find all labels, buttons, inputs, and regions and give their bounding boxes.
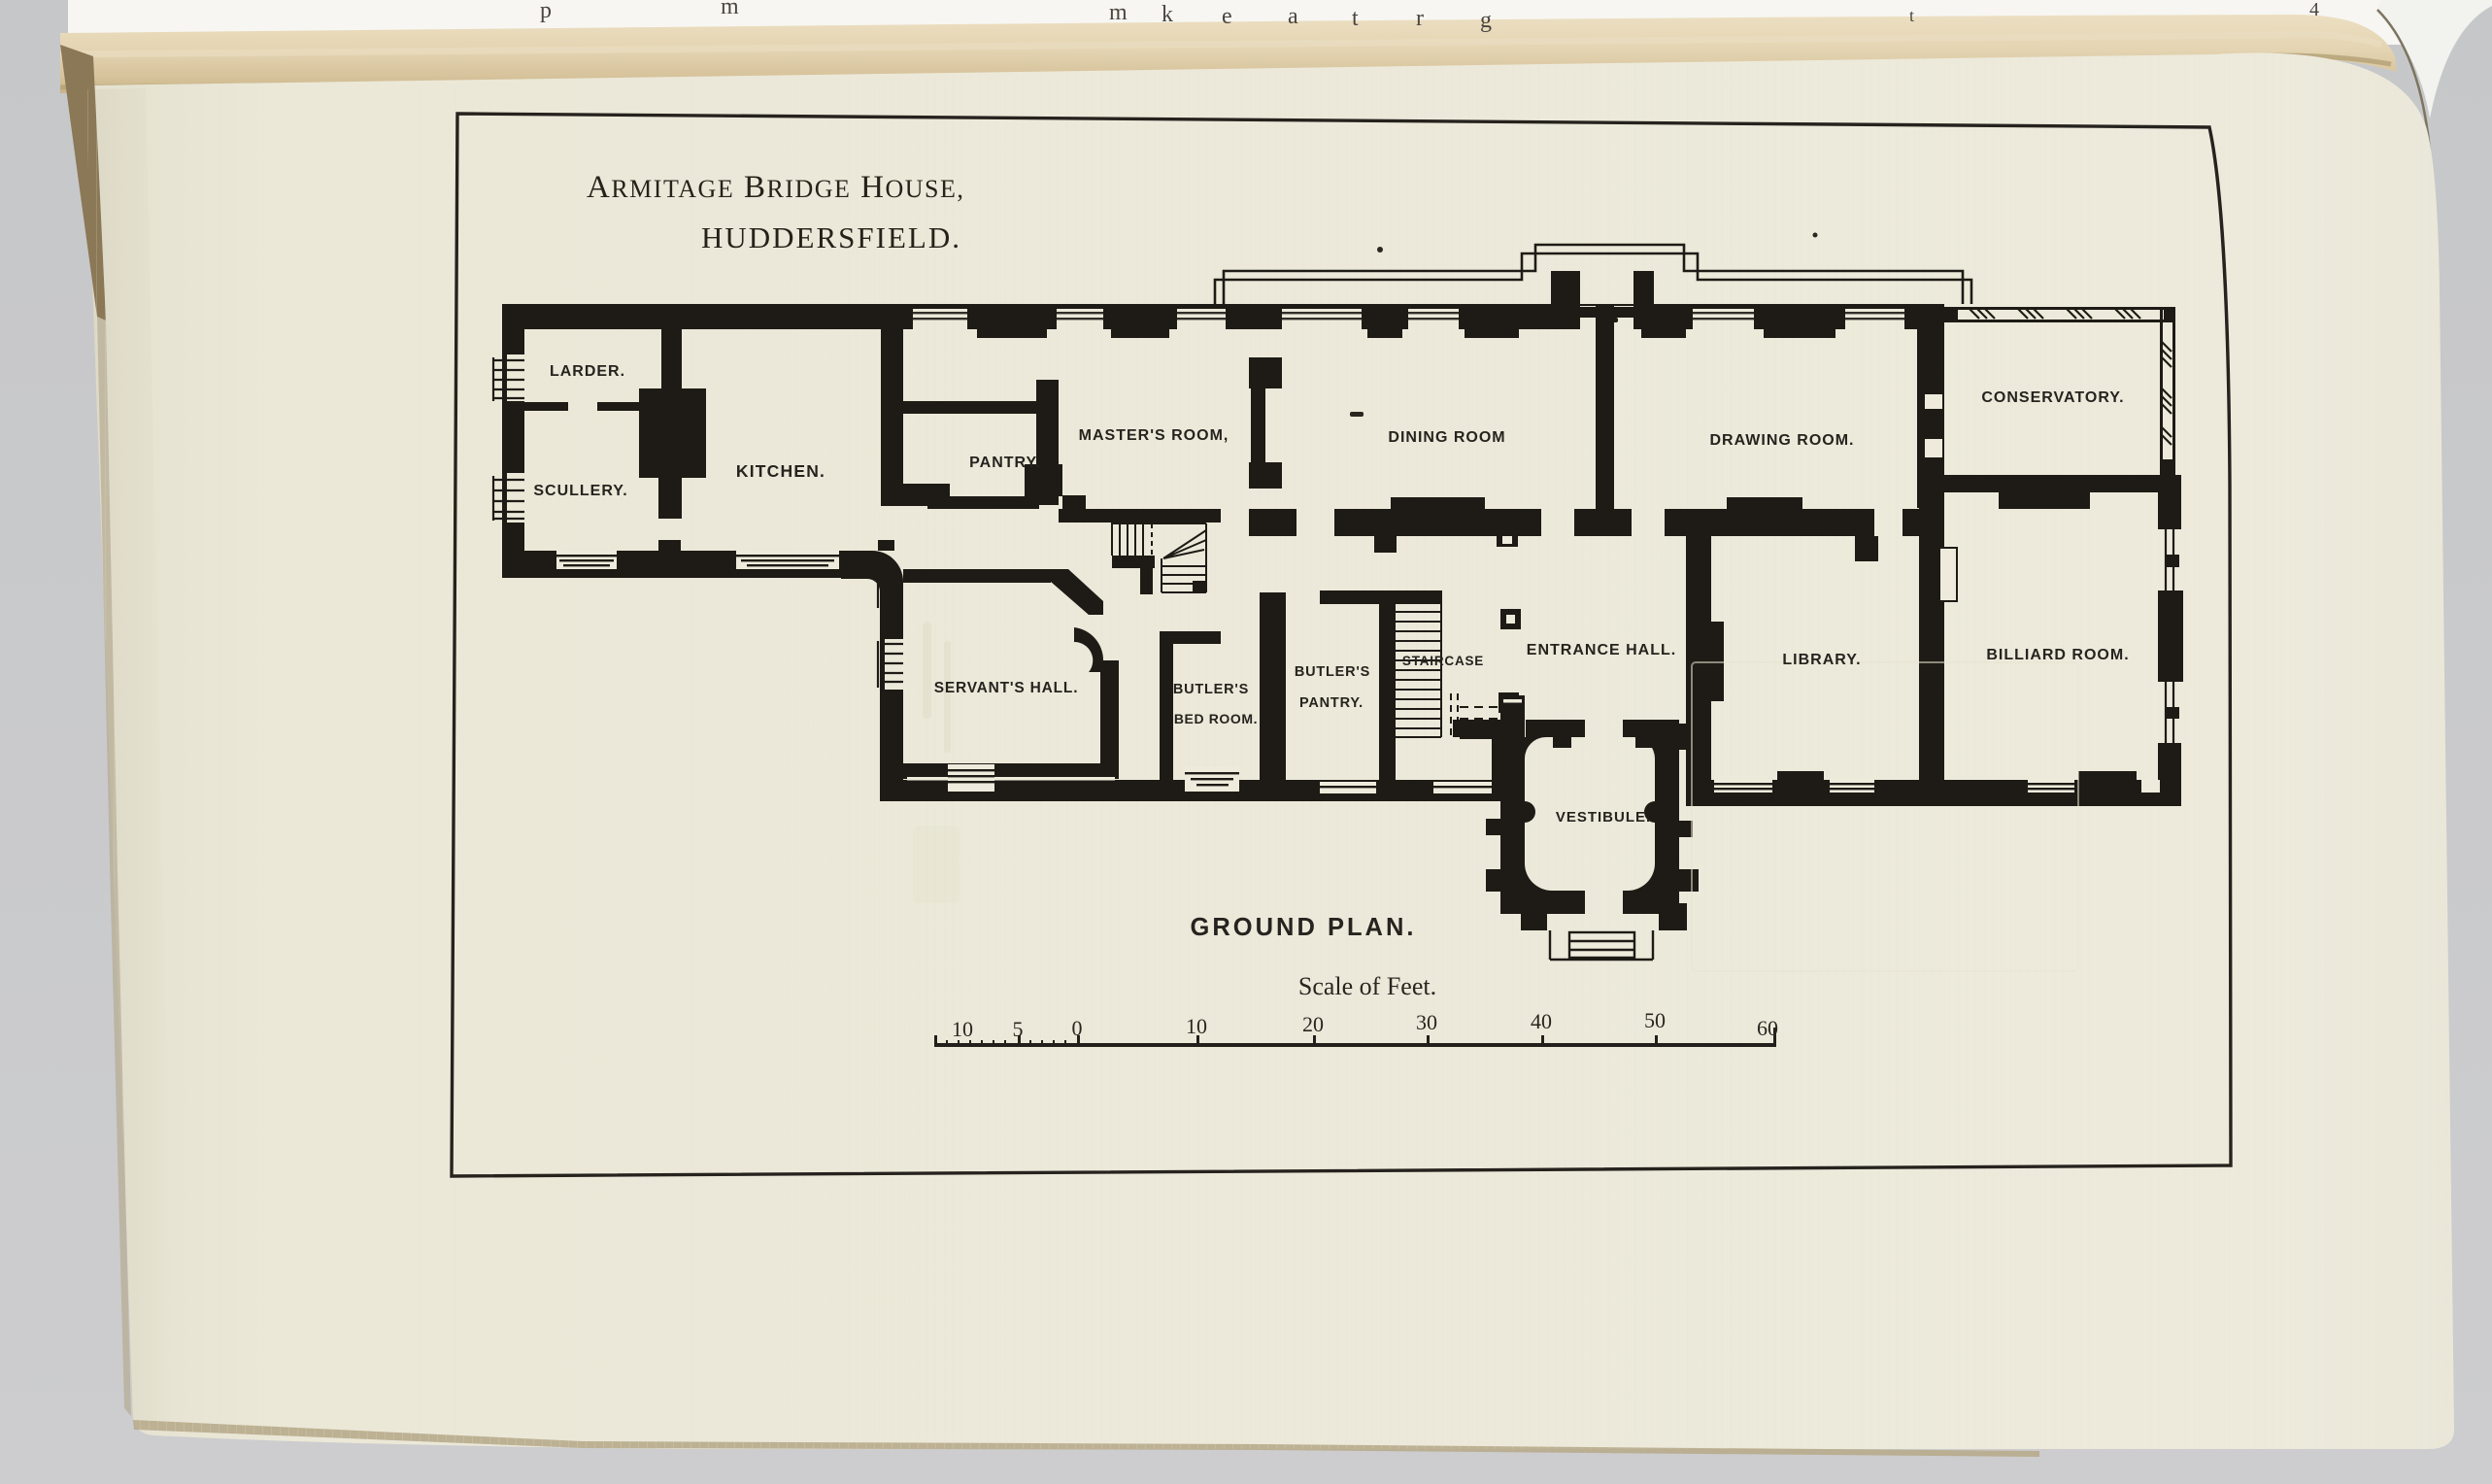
- svg-text:GROUND PLAN.: GROUND PLAN.: [1191, 914, 1417, 941]
- svg-text:SCULLERY.: SCULLERY.: [533, 483, 627, 499]
- svg-text:m: m: [721, 0, 739, 19]
- svg-text:4: 4: [2309, 0, 2319, 20]
- svg-text:ENTRANCE HALL.: ENTRANCE HALL.: [1527, 642, 1676, 658]
- svg-text:BUTLER'S: BUTLER'S: [1173, 682, 1249, 697]
- svg-text:BILLIARD ROOM.: BILLIARD ROOM.: [1986, 647, 2129, 663]
- svg-text:40: 40: [1531, 1009, 1552, 1033]
- svg-text:BUTLER'S: BUTLER'S: [1295, 664, 1370, 680]
- svg-text:CONSERVATORY.: CONSERVATORY.: [1981, 389, 2124, 406]
- svg-text:m: m: [1109, 0, 1128, 25]
- svg-text:e: e: [1222, 4, 1232, 29]
- svg-text:KITCHEN.: KITCHEN.: [736, 461, 825, 481]
- svg-text:BED ROOM.: BED ROOM.: [1174, 711, 1258, 726]
- svg-text:LIBRARY.: LIBRARY.: [1782, 652, 1861, 668]
- svg-text:t: t: [1352, 6, 1359, 31]
- svg-text:5: 5: [1013, 1017, 1024, 1041]
- svg-text:PANTRY.: PANTRY.: [969, 455, 1041, 471]
- svg-text:PANTRY.: PANTRY.: [1299, 695, 1364, 711]
- svg-text:VESTIBULE.: VESTIBULE.: [1556, 809, 1651, 826]
- svg-text:DRAWING ROOM.: DRAWING ROOM.: [1710, 432, 1855, 449]
- svg-text:ARMITAGE BRIDGE HOUSE,: ARMITAGE BRIDGE HOUSE,: [587, 170, 964, 205]
- svg-text:20: 20: [1302, 1012, 1324, 1036]
- svg-text:a: a: [1288, 4, 1298, 29]
- svg-text:k: k: [1162, 2, 1173, 27]
- svg-text:10: 10: [1186, 1014, 1207, 1038]
- svg-text:0: 0: [1072, 1016, 1083, 1040]
- svg-text:MASTER'S ROOM,: MASTER'S ROOM,: [1079, 427, 1229, 444]
- svg-text:10: 10: [952, 1017, 973, 1041]
- svg-text:g: g: [1480, 8, 1492, 33]
- svg-text:r: r: [1416, 6, 1424, 31]
- svg-text:Scale of Feet.: Scale of Feet.: [1298, 972, 1436, 1000]
- svg-text:t: t: [1909, 6, 1914, 25]
- svg-text:DINING ROOM: DINING ROOM: [1388, 429, 1505, 446]
- svg-text:60: 60: [1757, 1016, 1778, 1040]
- svg-text:50: 50: [1644, 1008, 1666, 1032]
- svg-text:SERVANT'S HALL.: SERVANT'S HALL.: [934, 680, 1079, 696]
- svg-text:HUDDERSFIELD.: HUDDERSFIELD.: [701, 220, 961, 254]
- svg-text:30: 30: [1416, 1010, 1437, 1034]
- svg-text:STAIRCASE: STAIRCASE: [1402, 654, 1484, 668]
- svg-text:p: p: [540, 0, 552, 23]
- svg-text:LARDER.: LARDER.: [550, 363, 625, 380]
